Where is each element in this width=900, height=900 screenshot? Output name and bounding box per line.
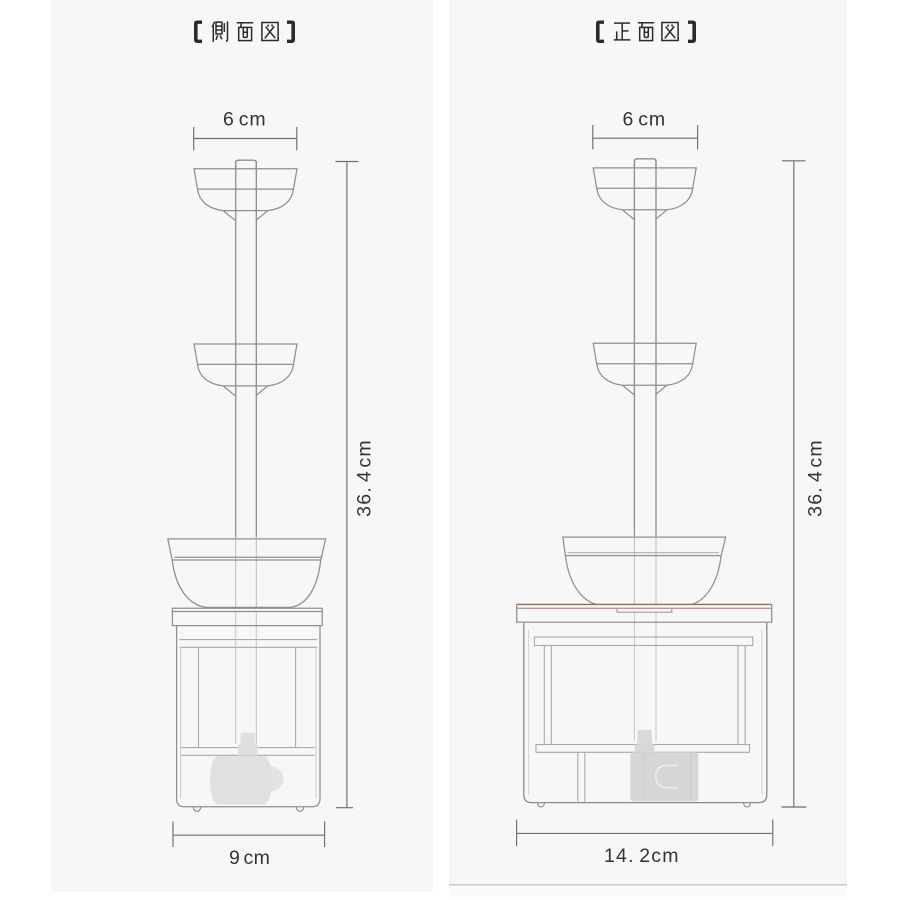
svg-text:9cm: 9cm xyxy=(229,847,270,869)
svg-text:36.4cm: 36.4cm xyxy=(805,439,827,517)
svg-text:36.4cm: 36.4cm xyxy=(354,439,376,517)
svg-text:6cm: 6cm xyxy=(623,109,667,131)
svg-text:6cm: 6cm xyxy=(223,109,267,131)
svg-text:14.2cm: 14.2cm xyxy=(604,845,680,867)
